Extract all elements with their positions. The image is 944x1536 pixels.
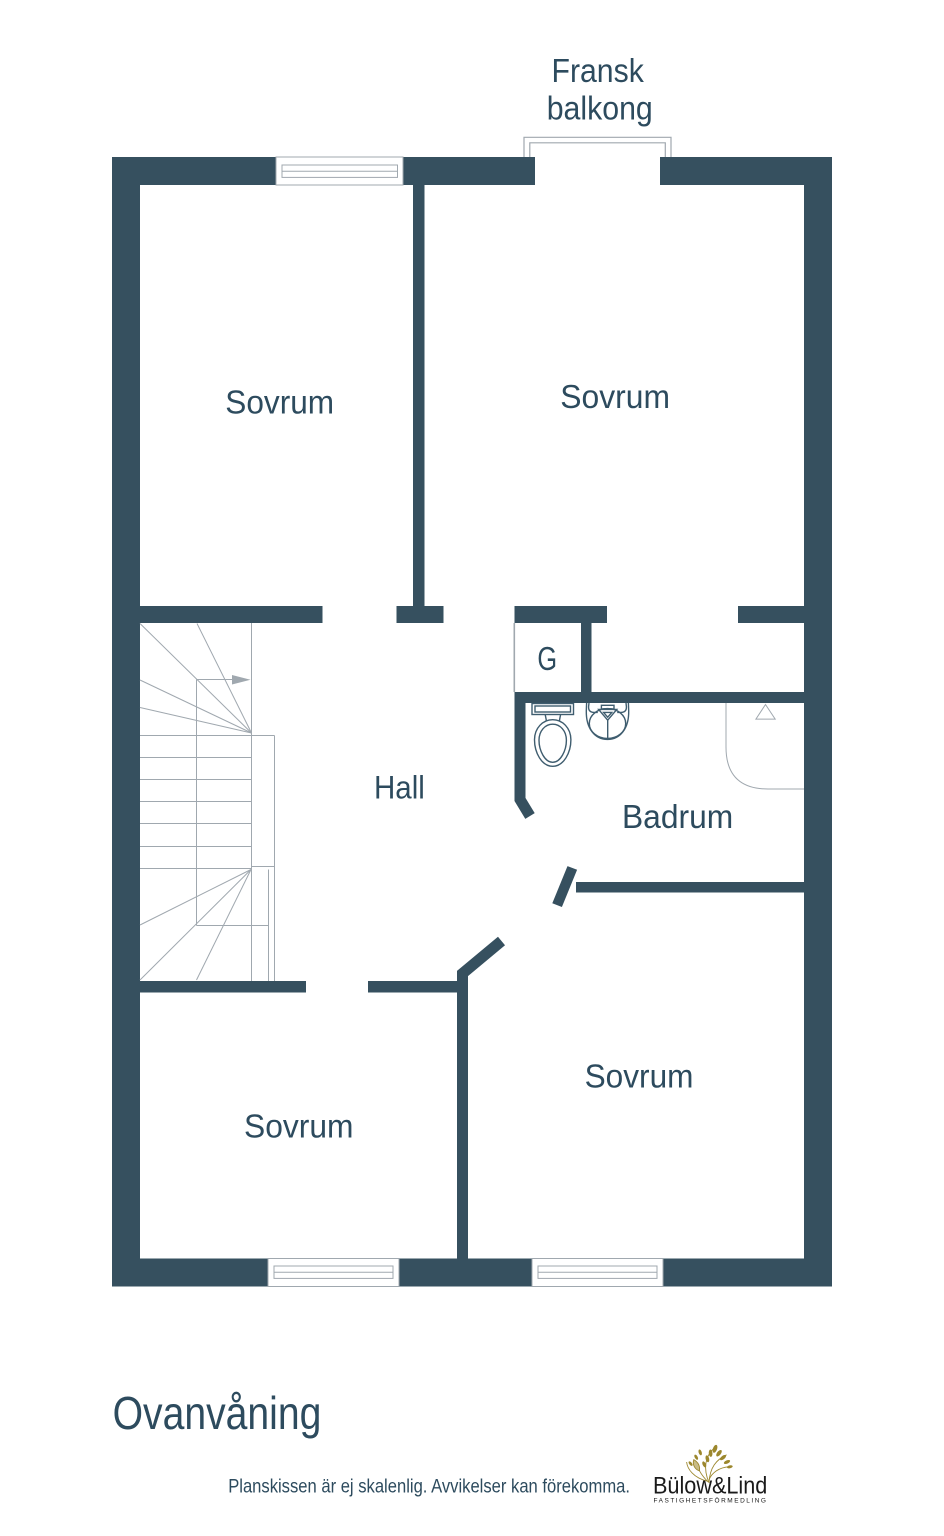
svg-text:Hall: Hall	[374, 770, 425, 806]
svg-text:Badrum: Badrum	[622, 798, 733, 835]
svg-text:Sovrum: Sovrum	[225, 383, 334, 420]
svg-text:FASTIGHETSFÖRMEDLING: FASTIGHETSFÖRMEDLING	[654, 1497, 768, 1505]
svg-text:Sovrum: Sovrum	[560, 378, 670, 415]
svg-text:Sovrum: Sovrum	[244, 1108, 354, 1145]
svg-text:Bülow&Lind: Bülow&Lind	[653, 1473, 767, 1500]
svg-text:balkong: balkong	[547, 89, 653, 126]
svg-text:Planskissen är ej skalenlig. A: Planskissen är ej skalenlig. Avvikelser …	[228, 1476, 630, 1498]
svg-text:Fransk: Fransk	[552, 52, 645, 89]
svg-text:G: G	[537, 640, 557, 677]
svg-text:Sovrum: Sovrum	[585, 1058, 694, 1095]
svg-text:Ovanvåning: Ovanvåning	[113, 1387, 322, 1439]
